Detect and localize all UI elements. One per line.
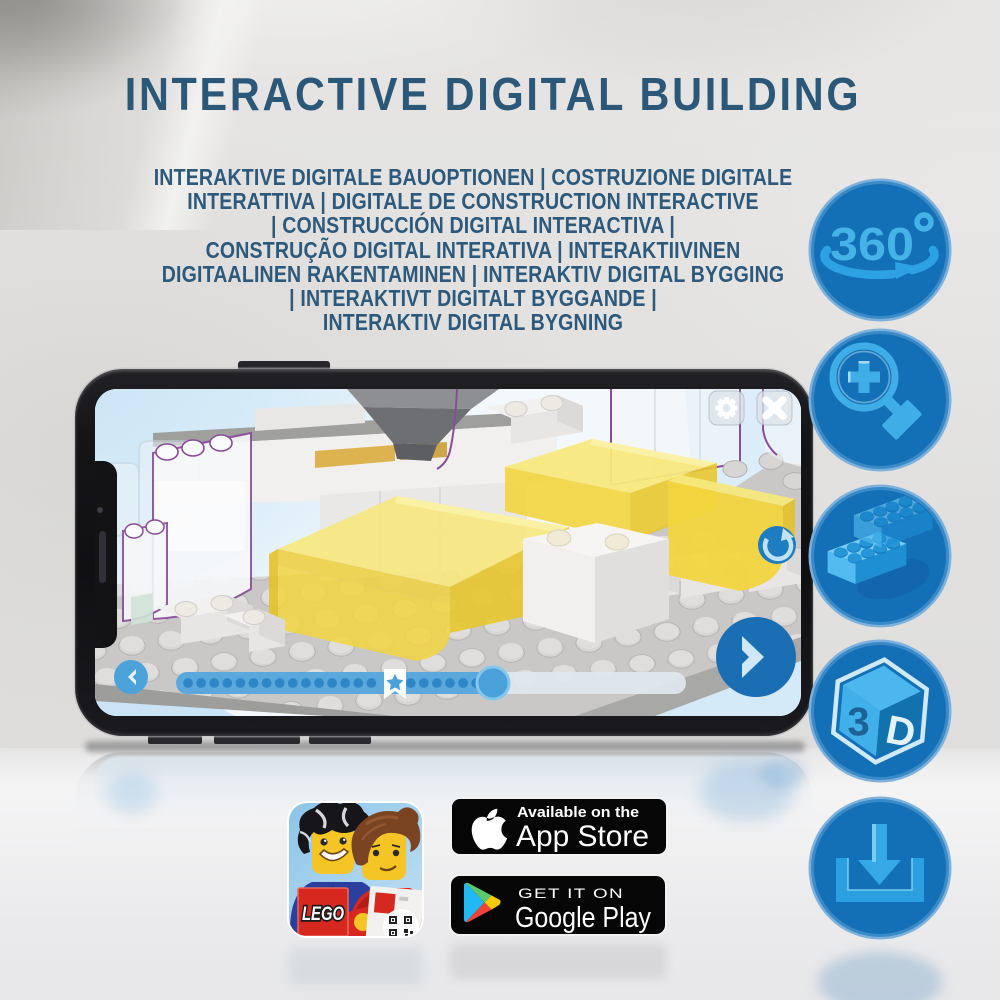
svg-text:LEGO: LEGO [302, 904, 344, 925]
svg-text:Available on the: Available on the [517, 805, 639, 821]
svg-text:App Store: App Store [516, 820, 649, 853]
svg-text:Google Play: Google Play [515, 902, 651, 934]
svg-text:GET IT ON: GET IT ON [518, 886, 624, 901]
svg-text:3: 3 [847, 700, 870, 744]
svg-text:360: 360 [830, 218, 914, 270]
